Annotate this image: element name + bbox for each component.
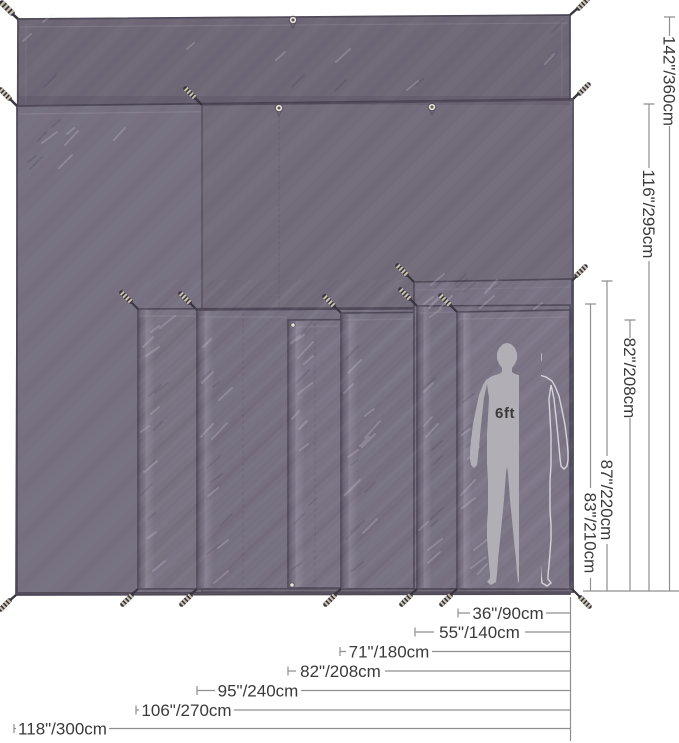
- svg-text:82"/208cm: 82"/208cm: [620, 338, 639, 419]
- svg-text:6ft: 6ft: [495, 405, 515, 422]
- svg-text:118"/300cm: 118"/300cm: [18, 720, 107, 739]
- svg-text:55"/140cm: 55"/140cm: [439, 623, 520, 642]
- svg-text:36"/90cm: 36"/90cm: [472, 604, 543, 623]
- svg-text:95"/240cm: 95"/240cm: [218, 682, 299, 701]
- svg-text:82"/208cm: 82"/208cm: [300, 662, 381, 681]
- svg-text:116"/295cm: 116"/295cm: [639, 170, 658, 259]
- svg-text:106"/270cm: 106"/270cm: [141, 701, 231, 720]
- svg-text:142"/360cm: 142"/360cm: [660, 36, 679, 126]
- svg-text:83"/210cm: 83"/210cm: [581, 493, 600, 574]
- svg-text:71"/180cm: 71"/180cm: [349, 643, 430, 662]
